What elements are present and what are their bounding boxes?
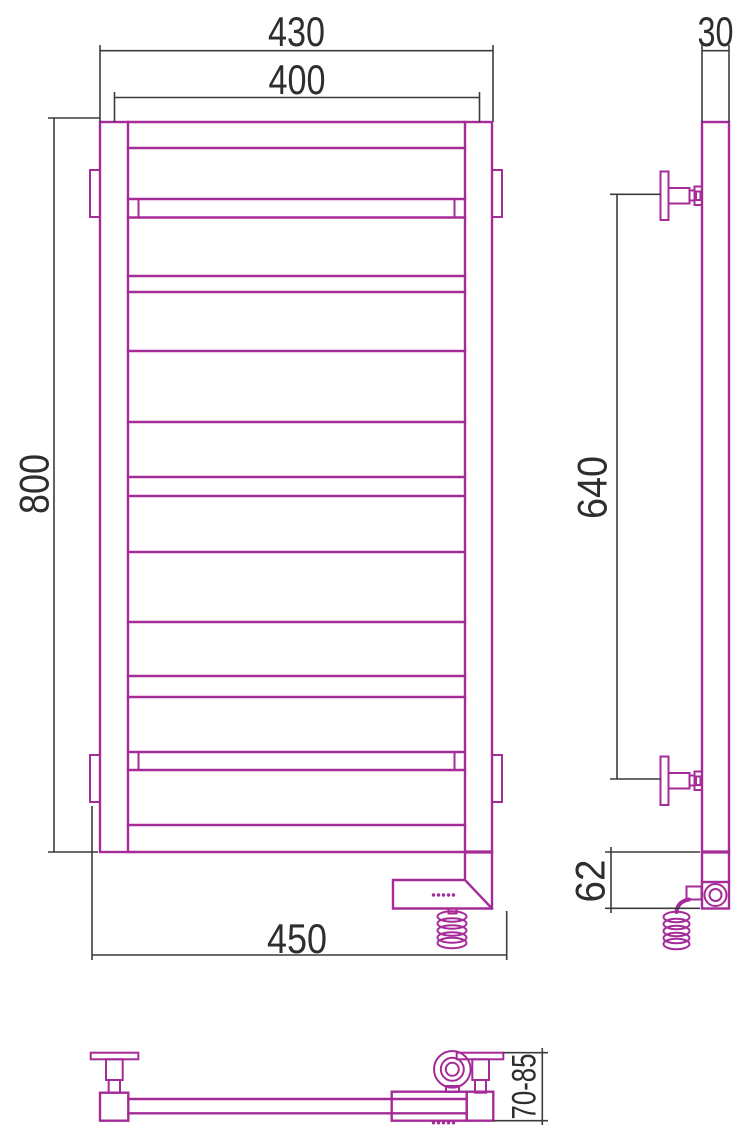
dim-label-heater-unit: 62 — [567, 860, 614, 903]
bracket-stem — [472, 1059, 489, 1080]
power-unit-section — [392, 1092, 467, 1121]
bracket-flange — [661, 172, 669, 221]
rail-tab — [128, 199, 139, 218]
side-tube — [702, 122, 729, 852]
bracket-arm — [669, 773, 690, 789]
front-view — [90, 122, 502, 948]
rail-tab — [455, 752, 466, 770]
dim-label-bracket-span: 640 — [569, 456, 616, 519]
cable-gland — [705, 884, 727, 906]
dim-line-bracket-span — [610, 194, 661, 779]
left-post-section — [100, 1093, 128, 1121]
cable-gland-dots — [432, 893, 455, 896]
rung-pair — [128, 676, 465, 697]
bracket-nut — [696, 192, 701, 201]
wall-bracket — [492, 755, 502, 802]
power-cord — [677, 900, 690, 913]
dimensions: 430 400 800 450 30 640 62 70-85 — [11, 8, 734, 1125]
wall-bracket — [492, 170, 502, 217]
cable-gland-inner — [710, 889, 722, 901]
hanger-rail-top — [128, 199, 465, 218]
wall-bracket — [90, 170, 100, 217]
dim-line-tube-depth — [702, 45, 729, 122]
cable-gland-bottom — [434, 1051, 471, 1092]
drawing-canvas: 430 400 800 450 30 640 62 70-85 — [0, 0, 750, 1141]
bracket-nut — [696, 777, 701, 786]
rail-tab — [455, 199, 466, 218]
rung-pair — [128, 477, 465, 496]
rung-pair — [128, 276, 465, 292]
wall-bracket — [90, 755, 100, 802]
spiral-cable-icon — [438, 909, 467, 949]
drawing-page: 430 400 800 450 30 640 62 70-85 — [0, 0, 750, 1141]
side-view — [661, 122, 730, 949]
bracket-step — [109, 1080, 120, 1093]
right-post-section — [467, 1092, 494, 1121]
right-post — [465, 122, 492, 852]
spiral-cable-icon — [664, 912, 690, 949]
rail-tab — [128, 752, 139, 770]
dim-label-height: 800 — [11, 454, 58, 514]
heater-housing — [702, 882, 729, 909]
dim-label-wall-clearance: 70-85 — [506, 1054, 544, 1120]
power-unit — [393, 852, 492, 909]
dim-label-bracket-width: 450 — [267, 915, 327, 962]
dim-line-heater-unit — [605, 847, 700, 913]
bottom-wall-bracket-left — [91, 1053, 139, 1093]
dim-label-axis-width: 400 — [269, 56, 326, 103]
rung-profile — [128, 1099, 466, 1113]
bottom-view — [91, 1051, 504, 1125]
tube-extension — [702, 852, 729, 882]
dim-label-overall-width: 430 — [268, 8, 325, 55]
bracket-stem — [106, 1059, 123, 1080]
bracket-flange — [661, 757, 669, 806]
hanger-rail-bottom — [128, 752, 465, 770]
bracket-arm — [669, 188, 690, 204]
dim-label-tube-depth: 30 — [698, 8, 734, 55]
left-post — [100, 122, 128, 852]
side-wall-bracket-bottom — [661, 757, 703, 806]
side-wall-bracket-top — [661, 172, 703, 221]
